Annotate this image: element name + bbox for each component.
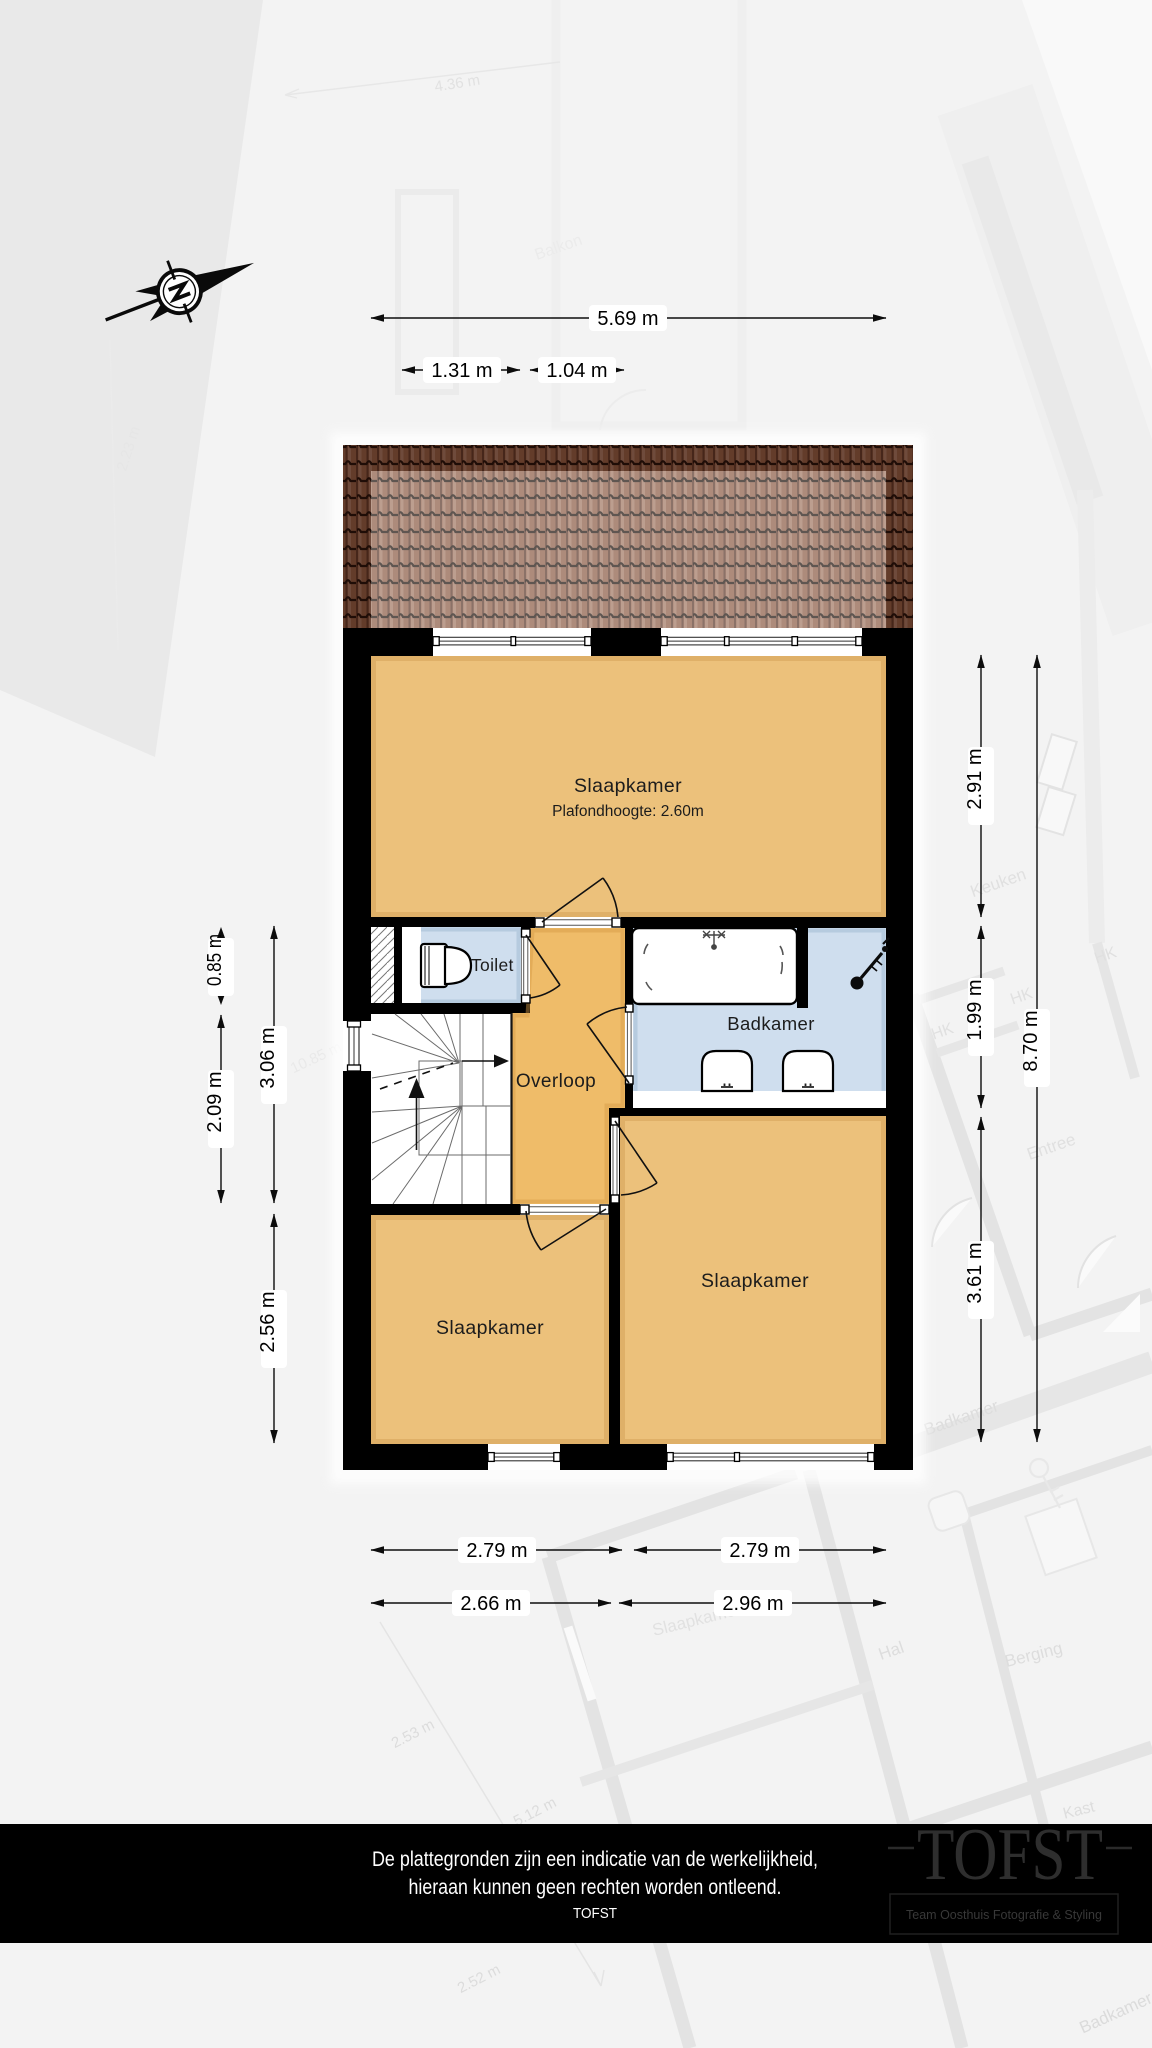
svg-text:TOFST: TOFST [573,1905,617,1922]
svg-text:De plattegronden zijn een indi: De plattegronden zijn een indicatie van … [372,1847,818,1871]
svg-text:1.31 m: 1.31 m [431,360,492,382]
svg-text:2.56 m: 2.56 m [257,1291,279,1352]
svg-text:Overloop: Overloop [516,1071,596,1092]
svg-text:2.96 m: 2.96 m [722,1593,783,1615]
svg-text:Slaapkamer: Slaapkamer [701,1270,809,1292]
svg-text:2.09 m: 2.09 m [204,1071,226,1132]
svg-text:1.04 m: 1.04 m [546,360,607,382]
svg-text:8.70 m: 8.70 m [1020,1010,1042,1071]
svg-text:Slaapkamer: Slaapkamer [574,775,682,797]
svg-text:1.99 m: 1.99 m [964,979,986,1040]
svg-text:hieraan kunnen geen rechten wo: hieraan kunnen geen rechten worden ontle… [409,1875,782,1899]
svg-text:0.85 m: 0.85 m [204,934,226,986]
svg-text:TOFST: TOFST [917,1814,1103,1896]
svg-text:2.79 m: 2.79 m [729,1540,790,1562]
svg-text:Team Oosthuis Fotografie & Sty: Team Oosthuis Fotografie & Styling [906,1908,1102,1922]
svg-text:Slaapkamer: Slaapkamer [436,1317,544,1339]
svg-text:2.79 m: 2.79 m [466,1540,527,1562]
svg-text:5.69 m: 5.69 m [597,308,658,330]
svg-text:2.66 m: 2.66 m [460,1593,521,1615]
svg-text:3.61 m: 3.61 m [964,1242,986,1303]
svg-text:3.06 m: 3.06 m [257,1027,279,1088]
svg-text:Toilet: Toilet [471,955,514,975]
svg-text:Badkamer: Badkamer [727,1013,815,1034]
svg-text:2.91 m: 2.91 m [964,748,986,809]
svg-text:Plafondhoogte: 2.60m: Plafondhoogte: 2.60m [552,803,704,820]
